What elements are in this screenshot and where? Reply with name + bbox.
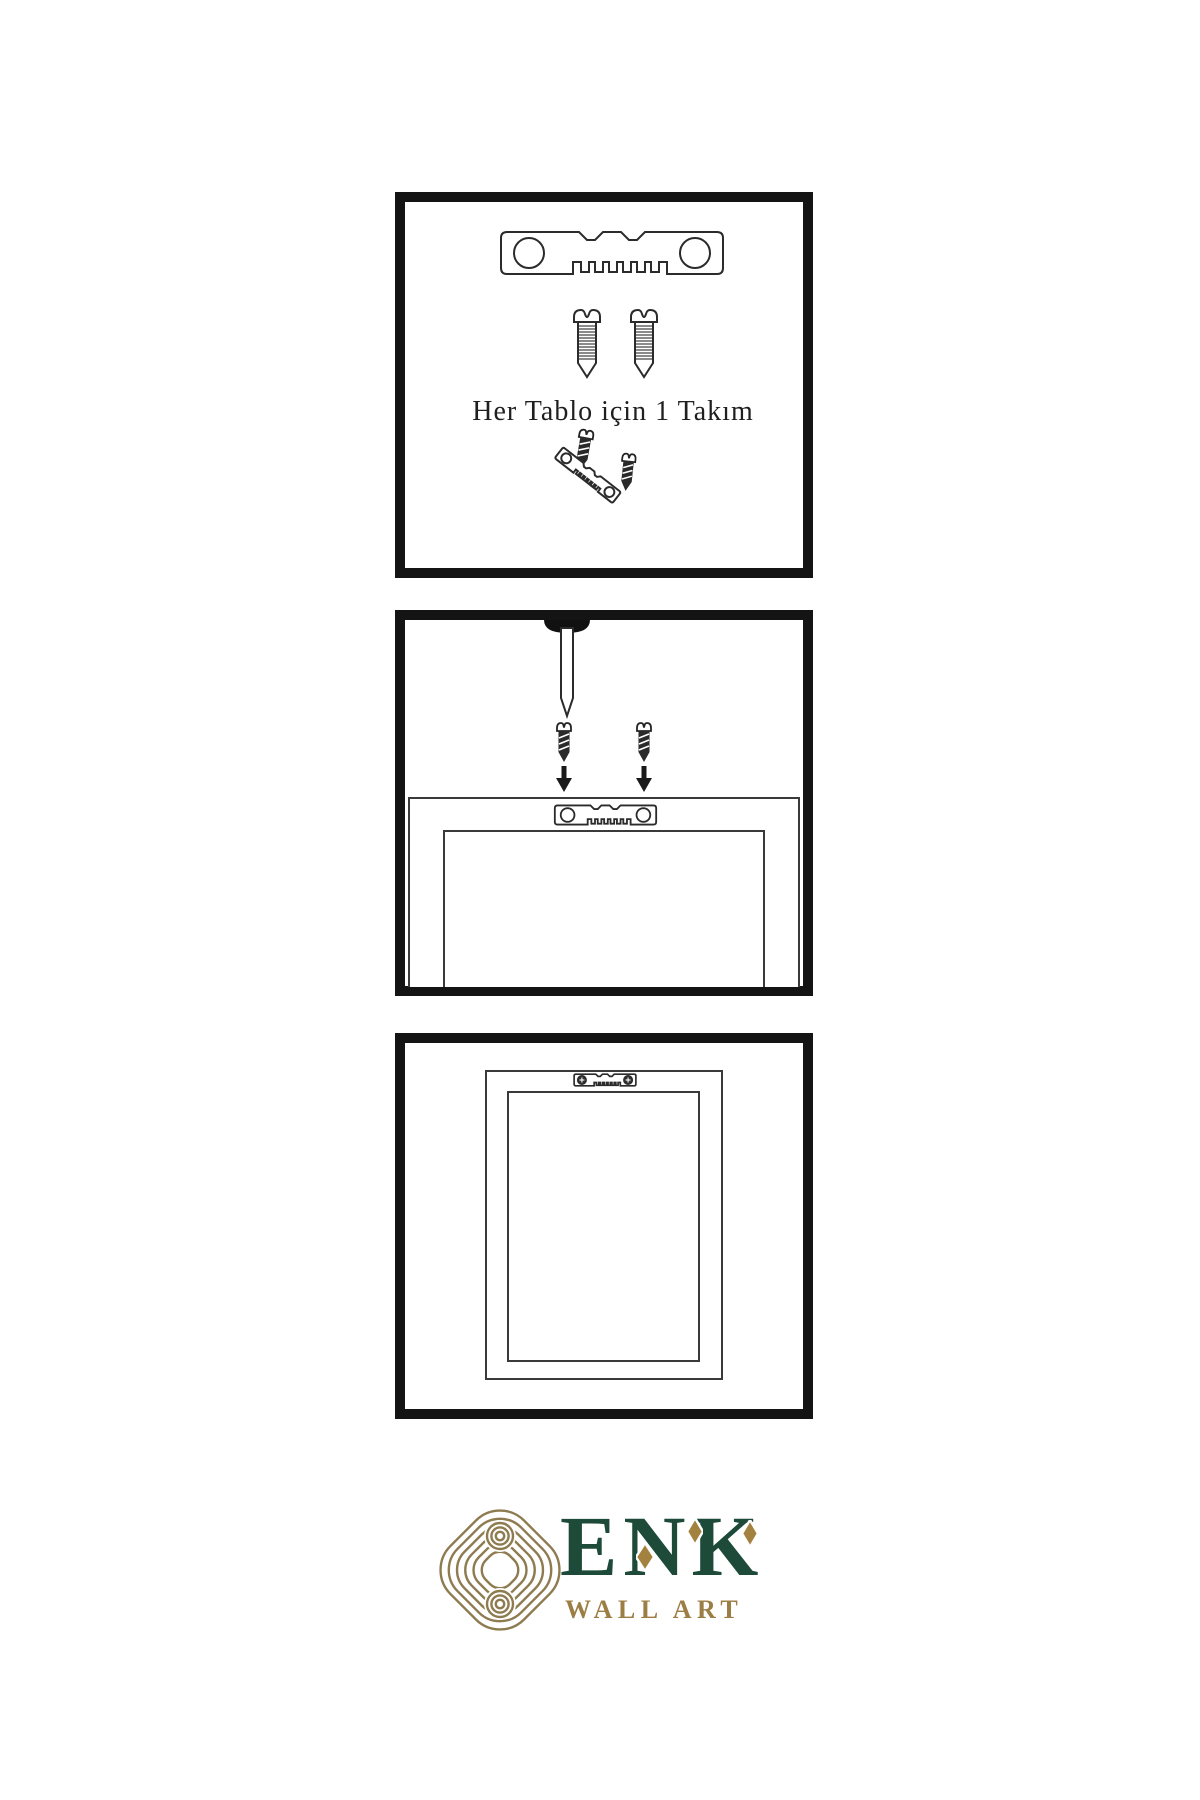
frame-back-inner (507, 1091, 700, 1362)
kit-caption: Her Tablo için 1 Takım (414, 396, 812, 428)
wall-nail-icon (544, 620, 590, 720)
frame-back-inner (443, 830, 765, 987)
sawtooth-hanger-icon (553, 802, 658, 828)
instruction-sheet: Her Tablo için 1 Takım (0, 0, 1200, 1800)
mounted-hanger-icon (573, 1072, 637, 1088)
step-3-panel (395, 1033, 813, 1419)
down-arrow-icon (636, 766, 652, 792)
sawtooth-hanger-icon (497, 225, 727, 281)
screw-icon (627, 306, 661, 380)
brand-diamond-icon (742, 1520, 758, 1547)
dark-screw-icon (634, 721, 654, 763)
brand-tagline: WALL ART (565, 1595, 743, 1625)
step-2-panel (395, 610, 813, 996)
dark-screw-icon (554, 721, 574, 763)
down-arrow-icon (556, 766, 572, 792)
brand-name: ENK (560, 1506, 764, 1588)
screw-icon (570, 306, 604, 380)
brand-diamond-icon (636, 1543, 654, 1571)
brand-diamond-icon (687, 1518, 703, 1545)
screw-into-hanger-icon (538, 428, 658, 514)
step-1-panel: Her Tablo için 1 Takım (395, 192, 813, 578)
brand-knot-icon (437, 1502, 563, 1638)
